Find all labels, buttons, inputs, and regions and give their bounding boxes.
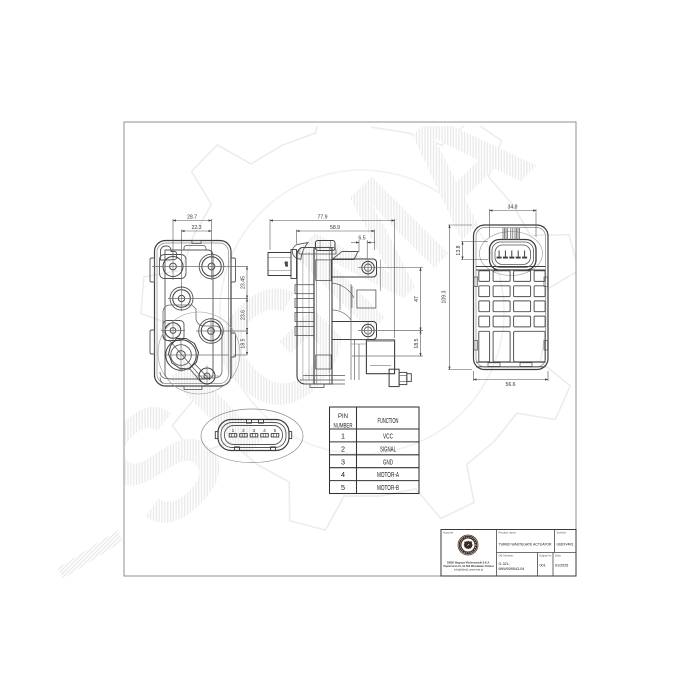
svg-text:22.3: 22.3 (191, 225, 201, 231)
svg-text:6NW009543-04: 6NW009543-04 (499, 567, 525, 571)
svg-text:77.9: 77.9 (317, 215, 327, 221)
svg-text:18.5: 18.5 (414, 338, 420, 348)
svg-text:56.6: 56.6 (505, 382, 515, 388)
svg-text:1: 1 (232, 428, 235, 434)
svg-text:34.8: 34.8 (507, 205, 517, 211)
svg-text:VCC: VCC (383, 432, 393, 441)
svg-text:23.6: 23.6 (241, 310, 247, 320)
svg-text:1: 1 (341, 432, 345, 441)
svg-text:23.45: 23.45 (241, 276, 247, 289)
svg-text:2: 2 (242, 428, 245, 434)
svg-text:NUMBER: NUMBER (334, 423, 353, 430)
svg-text:18.5: 18.5 (241, 338, 247, 348)
svg-text:Product name: Product name (499, 531, 517, 535)
svg-text:G-32L,: G-32L, (499, 562, 510, 566)
svg-text:OE Number: OE Number (499, 554, 514, 558)
svg-text:3: 3 (341, 457, 345, 466)
svg-text:58.9: 58.9 (330, 225, 340, 231)
svg-text:MOTOR-B: MOTOR-B (377, 483, 399, 492)
svg-text:Symbol: Symbol (557, 531, 567, 535)
svg-text:3: 3 (253, 428, 256, 434)
svg-text:28.7: 28.7 (187, 215, 197, 221)
svg-text:4: 4 (263, 428, 266, 434)
svg-text:13.8: 13.8 (456, 245, 462, 255)
svg-text:4: 4 (341, 470, 345, 479)
svg-text:info@sklep1.www-site.pl: info@sklep1.www-site.pl (454, 568, 483, 571)
svg-text:GND: GND (383, 457, 393, 466)
svg-text:Date: Date (555, 554, 561, 558)
svg-text:Importer: Importer (443, 531, 453, 535)
svg-text:G6DXV4R1: G6DXV4R1 (557, 543, 574, 547)
svg-text:109.3: 109.3 (442, 290, 448, 303)
svg-text:001: 001 (540, 564, 546, 568)
svg-text:FUNCTION: FUNCTION (378, 416, 399, 425)
svg-text:47: 47 (414, 296, 420, 302)
svg-text:Diagram No.: Diagram No. (540, 554, 553, 558)
svg-text:2: 2 (341, 444, 345, 453)
svg-text:SIGNAL: SIGNAL (380, 444, 396, 453)
svg-text:MOTOR-A: MOTOR-A (377, 470, 399, 479)
svg-text:01/2025: 01/2025 (555, 564, 568, 568)
svg-text:5: 5 (274, 428, 277, 434)
svg-text:PIN: PIN (338, 413, 348, 420)
svg-text:6.5: 6.5 (358, 236, 365, 242)
svg-text:⌀8: ⌀8 (284, 261, 289, 266)
svg-text:TURBO WASTEGATE ACTUATOR: TURBO WASTEGATE ACTUATOR (499, 543, 552, 547)
svg-text:5: 5 (341, 483, 345, 492)
